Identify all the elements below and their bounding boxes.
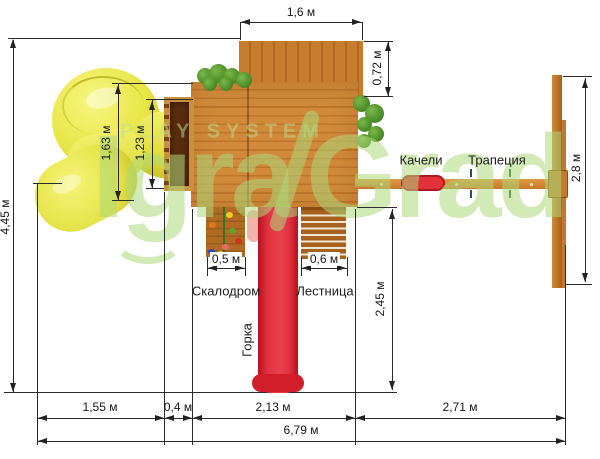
dim-span-swing: 2,71 м: [443, 400, 478, 414]
extension-line: [245, 257, 246, 276]
dim-slide-run: 2,45 м: [373, 282, 387, 317]
extension-line: [362, 22, 363, 40]
dim-roof-width: 1,6 м: [287, 5, 315, 19]
trapeze-hook-mark: [509, 169, 511, 177]
balcony-interior: [170, 102, 189, 186]
dim-arrow: [385, 42, 391, 51]
dim-arrow: [556, 415, 565, 421]
dim-roof-depth: 0,72 м: [370, 51, 384, 86]
bush: [236, 72, 252, 88]
extension-line: [355, 209, 356, 445]
dim-total-depth: 4,45 м: [0, 200, 12, 235]
dim-arrow: [582, 79, 588, 88]
dim-arrow: [183, 415, 192, 421]
extension-line: [146, 188, 164, 189]
climbing-hold: [209, 222, 216, 228]
dim-tube-inner-line: [152, 100, 153, 188]
trapeze-hook-mark: [509, 190, 511, 198]
label-climbing-wall: Скалодром: [192, 284, 260, 299]
dim-row1-line: [37, 418, 565, 419]
dim-arrow: [389, 210, 395, 219]
balcony-crenellation: [164, 97, 169, 191]
extension-line: [364, 96, 393, 97]
dim-arrow: [556, 438, 565, 444]
dim-arrow: [10, 39, 16, 48]
dim-total-width-line: [37, 441, 565, 442]
dim-roof-width-line: [240, 22, 362, 23]
climbing-hold: [226, 212, 233, 218]
dim-arrow: [38, 438, 47, 444]
extension-line: [33, 183, 62, 184]
label-swing: Качели: [400, 153, 443, 168]
dim-arrow: [10, 383, 16, 392]
trapeze-hook-mark: [470, 169, 472, 177]
dim-arrow: [582, 273, 588, 282]
bush: [357, 134, 371, 148]
dim-arrow: [356, 415, 365, 421]
beam-bolt: [380, 183, 383, 186]
bush: [219, 77, 233, 91]
label-slide: Горка: [240, 323, 255, 357]
playground-top-view-drawing: PLAY SYSTEM Igra Grad 4,45 м 1,6 м 0,72 …: [0, 0, 600, 459]
climbing-hold: [222, 244, 229, 250]
extension-line: [112, 200, 134, 201]
deck-seam: [247, 82, 249, 207]
dim-span-platform: 2,13 м: [256, 400, 291, 414]
extension-line: [8, 38, 240, 39]
dim-arrow: [115, 191, 121, 200]
swing-frame-bracket: [548, 170, 568, 198]
dim-tube-inner: 1,23 м: [133, 126, 147, 161]
extension-line: [357, 207, 397, 208]
extension-line: [146, 99, 193, 100]
label-ladder: Лестница: [296, 284, 353, 299]
dim-slide-run-line: [392, 209, 393, 390]
dim-climb-width: 0,5 м: [210, 252, 242, 266]
beam-bolt: [530, 183, 533, 186]
extension-line: [192, 209, 193, 445]
label-trapeze: Трапеция: [468, 153, 526, 168]
dim-total-width: 6,79 м: [284, 423, 319, 437]
dim-arrow: [115, 85, 121, 94]
dim-arrow: [389, 381, 395, 390]
dim-tube-outer-line: [118, 84, 119, 200]
dim-tube-outer: 1,63 м: [99, 126, 113, 161]
extension-line: [112, 83, 193, 84]
slide-chute: [258, 207, 298, 393]
dim-total-depth-line: [13, 40, 14, 392]
dim-arrow: [385, 87, 391, 96]
climbing-hold: [229, 228, 236, 234]
dim-ladder-width: 0,6 м: [308, 252, 340, 266]
slide-exit-flare: [252, 374, 304, 392]
dim-span-balcony: 0,4 м: [164, 400, 192, 414]
extension-line: [347, 257, 348, 276]
beam-bolt: [455, 183, 458, 186]
dim-arrow: [149, 101, 155, 110]
extension-line: [563, 76, 592, 77]
trapeze-hook-mark: [470, 190, 472, 198]
dim-arrow: [193, 415, 202, 421]
extension-line: [37, 183, 38, 445]
extension-line: [565, 245, 566, 445]
platform-deck: [191, 82, 358, 207]
extension-line: [565, 284, 592, 285]
climbing-hold: [235, 238, 242, 244]
dim-arrow: [38, 415, 47, 421]
dim-swing-frame: 2,8 м: [569, 154, 583, 182]
dim-span-tube: 1,55 м: [83, 400, 118, 414]
watermark-arc: [112, 216, 184, 264]
dim-arrow: [165, 415, 174, 421]
bush: [203, 77, 217, 91]
dim-arrow: [155, 415, 164, 421]
swing-seat: [401, 175, 445, 191]
ground-extension-line: [4, 392, 397, 393]
dim-arrow: [346, 415, 355, 421]
dim-arrow: [149, 179, 155, 188]
dim-swing-frame-line: [585, 78, 586, 282]
dim-arrow: [352, 19, 361, 25]
dim-arrow: [241, 19, 250, 25]
